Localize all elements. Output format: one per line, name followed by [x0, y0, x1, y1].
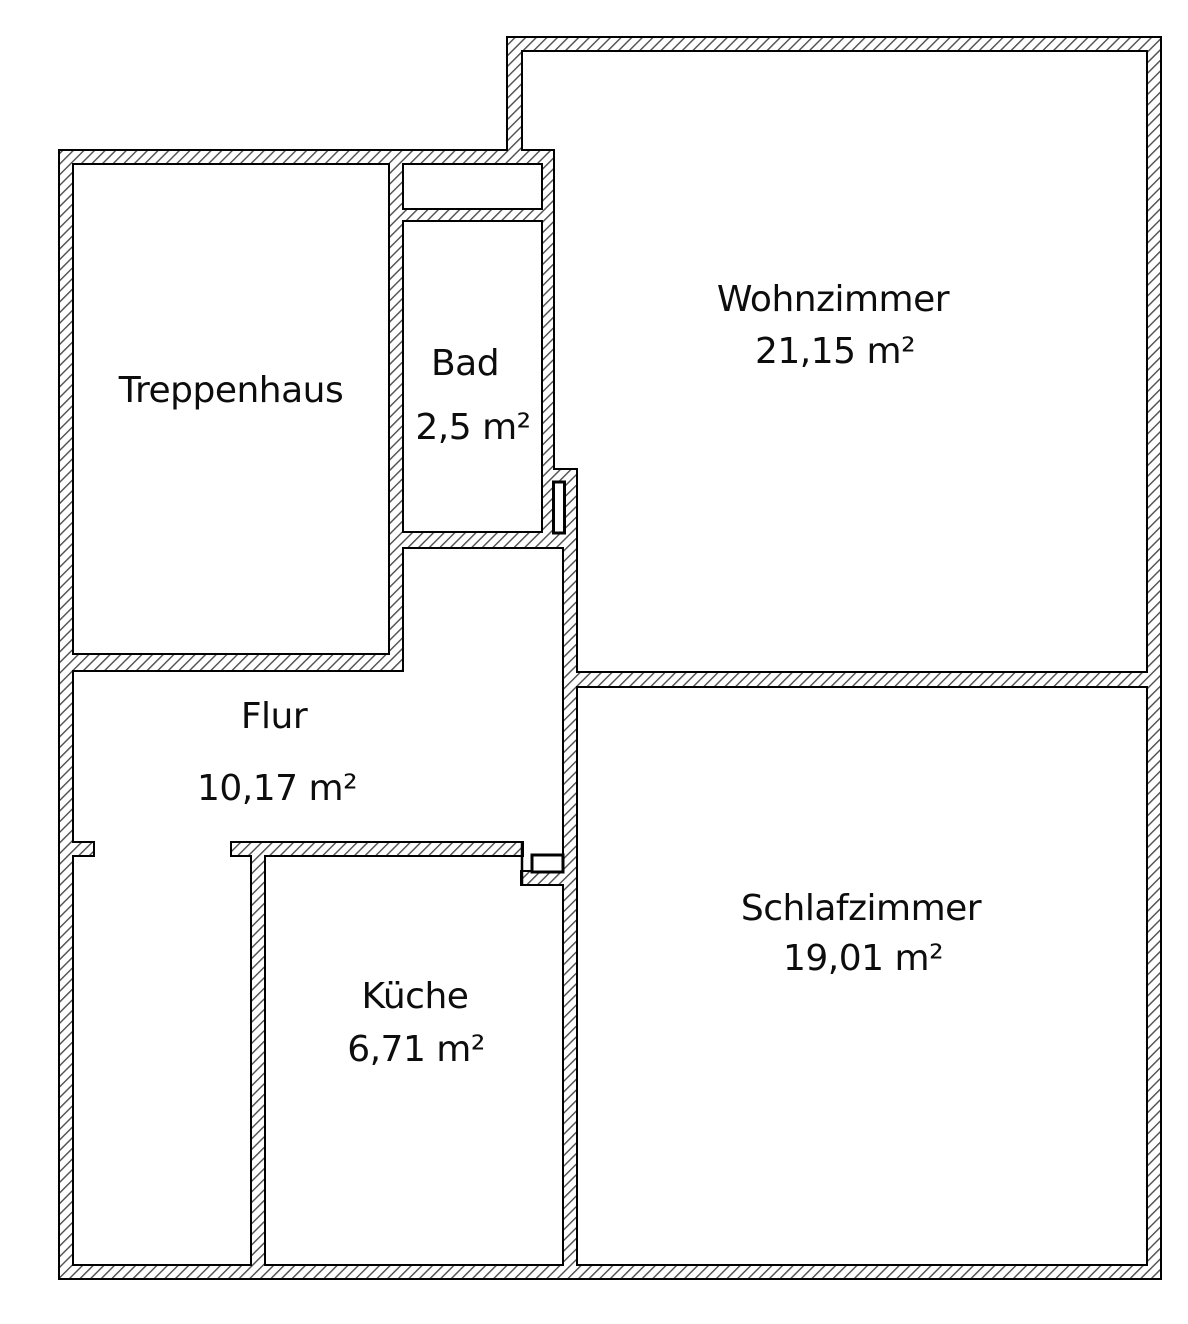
floor-plan: Treppenhaus Bad 2,5 m² Wohnzimmer 21,15 … [0, 0, 1188, 1324]
room-label-schlafzimmer: Schlafzimmer [741, 891, 981, 927]
room-label-bad: Bad [431, 346, 499, 382]
room-label-wohnzimmer: Wohnzimmer [717, 282, 949, 318]
door-kueche [532, 855, 563, 872]
room-area-flur: 10,17 m² [197, 771, 357, 807]
floor-plan-walls-svg [0, 0, 1188, 1324]
room-area-kueche: 6,71 m² [347, 1032, 485, 1068]
door-wohnzimmer [554, 482, 565, 533]
room-label-treppenhaus: Treppenhaus [119, 373, 343, 409]
room-area-bad: 2,5 m² [415, 410, 530, 446]
room-label-kueche: Küche [362, 979, 469, 1015]
room-area-schlafzimmer: 19,01 m² [783, 941, 943, 977]
room-area-wohnzimmer: 21,15 m² [755, 334, 915, 370]
room-label-flur: Flur [241, 699, 307, 735]
